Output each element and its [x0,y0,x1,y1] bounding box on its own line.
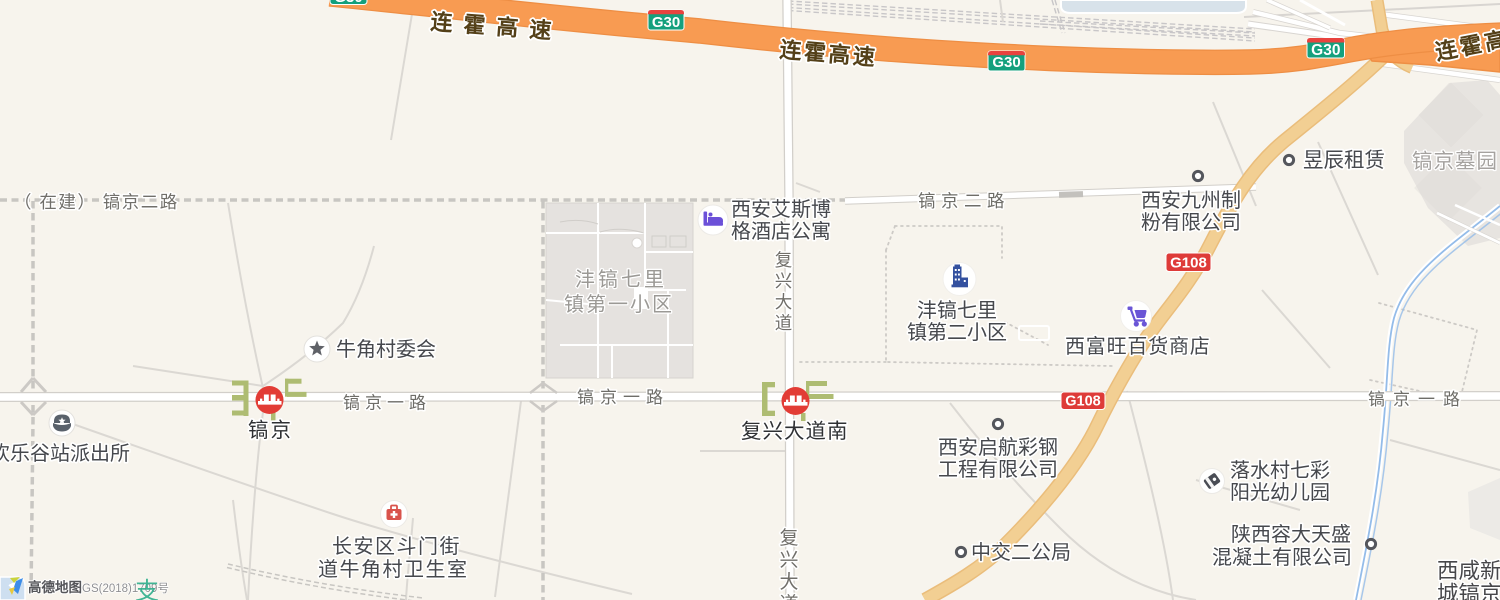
svg-text:镐京一路: 镐京一路 [577,388,669,407]
svg-text:G30: G30 [992,54,1020,71]
svg-text:中交二公局: 中交二公局 [971,541,1071,564]
svg-text:镐京墓园: 镐京墓园 [1412,150,1498,173]
svg-text:混凝土有限公司: 混凝土有限公司 [1212,546,1352,569]
svg-text:大: 大 [775,292,793,312]
svg-text:高德地图: 高德地图 [28,579,82,595]
svg-text:城镐京: 城镐京 [1437,582,1500,600]
svg-text:镐京: 镐京 [248,419,293,442]
svg-text:镐京一路: 镐京一路 [343,394,431,413]
svg-text:G30: G30 [652,14,680,31]
svg-text:镇第一小区: 镇第一小区 [564,293,674,316]
svg-text:西安启航彩钢: 西安启航彩钢 [938,436,1058,459]
svg-text:G108: G108 [1170,255,1207,272]
svg-text:西安艾斯博: 西安艾斯博 [731,198,831,221]
svg-text:镇第二小区: 镇第二小区 [907,321,1007,344]
svg-text:欢乐谷站派出所: 欢乐谷站派出所 [0,442,130,465]
svg-text:（ 在建） 镐京二路: （ 在建） 镐京二路 [14,192,179,212]
svg-text:兴: 兴 [775,271,793,291]
svg-text:昱辰租赁: 昱辰租赁 [1303,149,1385,172]
svg-text:复兴大道南: 复兴大道南 [741,420,849,443]
svg-text:道: 道 [775,313,793,333]
svg-text:陕西容大天盛: 陕西容大天盛 [1231,523,1351,546]
svg-text:镐京一路: 镐京一路 [1368,390,1468,409]
svg-text:阳光幼儿园: 阳光幼儿园 [1230,481,1330,504]
svg-text:格酒店公寓: 格酒店公寓 [731,220,831,243]
svg-text:G108: G108 [1065,394,1100,410]
svg-text:沣镐七里: 沣镐七里 [917,299,997,322]
svg-text:G30: G30 [334,0,362,6]
svg-text:西富旺百货商店: 西富旺百货商店 [1065,335,1211,358]
svg-text:落水村七彩: 落水村七彩 [1230,459,1330,482]
svg-text:道: 道 [779,593,798,600]
svg-text:长安区斗门街: 长安区斗门街 [332,535,461,558]
svg-text:道牛角村卫生室: 道牛角村卫生室 [318,558,469,581]
svg-text:大: 大 [779,571,798,593]
svg-text:复: 复 [779,527,798,549]
svg-text:工程有限公司: 工程有限公司 [938,458,1058,481]
svg-text:兴: 兴 [779,549,798,571]
svg-text:支: 支 [135,578,159,600]
svg-text:G30: G30 [1311,42,1340,59]
svg-text:沣镐七里: 沣镐七里 [575,268,667,291]
svg-text:镐京二路: 镐京二路 [918,191,1010,211]
svg-text:西安九州制: 西安九州制 [1141,189,1241,212]
svg-text:复: 复 [775,250,793,270]
svg-text:牛角村委会: 牛角村委会 [336,338,436,361]
svg-text:西咸新: 西咸新 [1437,559,1500,583]
svg-text:粉有限公司: 粉有限公司 [1141,211,1241,234]
